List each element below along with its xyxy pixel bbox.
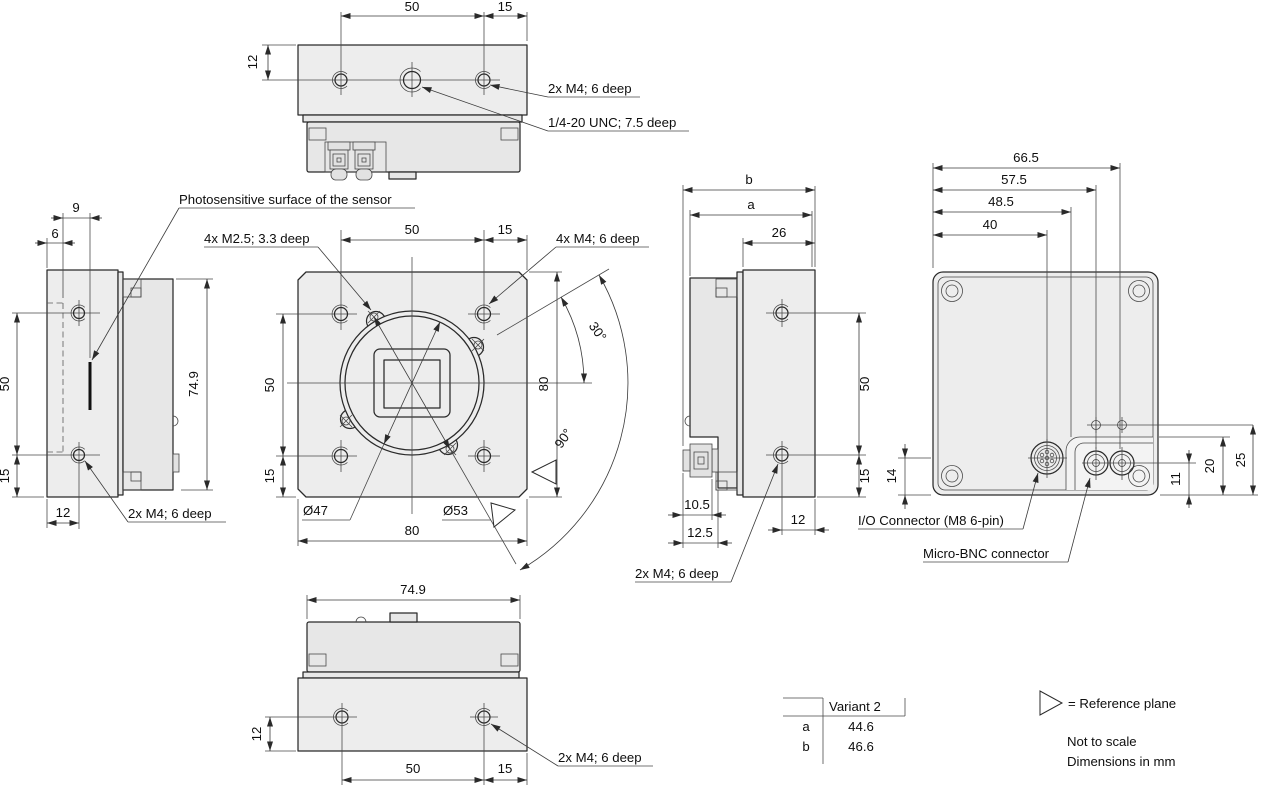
legend-units-note: Dimensions in mm [1067, 754, 1175, 769]
table-row-value-a: 44.6 [848, 719, 874, 734]
table-row-value-b: 46.6 [848, 739, 874, 754]
dim-front-right-80: 80 [536, 377, 551, 392]
dim-dia47: Ø47 [303, 503, 328, 518]
dim-left-12: 12 [56, 505, 71, 520]
dim-ang90: 90° [551, 426, 575, 451]
table-row-key-b: b [802, 739, 809, 754]
dim-left-15: 15 [0, 469, 12, 484]
dim-14: 14 [884, 469, 899, 484]
view-back: 66.5 57.5 48.5 40 14 11 20 25 I/O Connec… [858, 150, 1258, 562]
dim-a: a [747, 197, 755, 212]
technical-drawing-canvas: 50 15 12 2x M4; 6 deep 1/4-20 UNC; 7.5 d… [0, 0, 1262, 786]
view-bottom: 74.9 12 50 15 2x M4; 6 deep [249, 582, 653, 785]
dim-48-5: 48.5 [988, 194, 1014, 209]
dim-12-5: 12.5 [687, 525, 713, 540]
view-side-right: b a 26 50 15 10.5 12.5 12 2x M4; 6 deep [635, 172, 872, 582]
dim-40: 40 [983, 217, 998, 232]
legend-scale-note: Not to scale [1067, 734, 1137, 749]
dim-top-15: 15 [498, 0, 513, 14]
io-connector-protrusion [389, 172, 416, 179]
dim-bottom-74-9: 74.9 [400, 582, 426, 597]
dim-left-6: 6 [51, 226, 58, 241]
dim-10-5: 10.5 [684, 497, 710, 512]
dim-bottom-15: 15 [498, 761, 513, 776]
dim-11: 11 [1168, 472, 1183, 486]
dim-dia53: Ø53 [443, 503, 468, 518]
view-top: 50 15 12 2x M4; 6 deep 1/4-20 UNC; 7.5 d… [245, 0, 689, 180]
dim-26: 26 [772, 225, 787, 240]
note-left-m4: 2x M4; 6 deep [128, 506, 212, 521]
note-front-m4: 4x M4; 6 deep [556, 231, 640, 246]
legend: = Reference plane Not to scale Dimension… [1040, 691, 1176, 769]
dim-20: 20 [1202, 459, 1217, 474]
io-connector-protrusion-bottom [390, 613, 417, 622]
bnc-tip-left-view [173, 454, 179, 472]
dim-left-50: 50 [0, 377, 12, 392]
table-row-key-a: a [802, 719, 810, 734]
note-bnc-connector: Micro-BNC connector [923, 546, 1050, 561]
dim-front-bottom-80: 80 [405, 523, 420, 538]
dim-bottom-50: 50 [406, 761, 421, 776]
variant-table: Variant 2 a 44.6 b 46.6 [783, 698, 905, 764]
view-front: 50 15 50 15 80 80 Ø47 Ø53 30° 90° [204, 222, 649, 570]
dim-top-50: 50 [405, 0, 420, 14]
dim-bottom-12: 12 [249, 727, 264, 742]
dim-57-5: 57.5 [1001, 172, 1027, 187]
dim-66-5: 66.5 [1013, 150, 1039, 165]
table-header: Variant 2 [829, 699, 881, 714]
dim-front-top-50: 50 [405, 222, 420, 237]
dim-side-50: 50 [857, 377, 872, 392]
dim-side-15: 15 [857, 469, 872, 484]
note-side-m4: 2x M4; 6 deep [635, 566, 719, 581]
dim-side-12: 12 [791, 512, 806, 527]
note-top-m4: 2x M4; 6 deep [548, 81, 632, 96]
reference-plane-triangle-right [532, 460, 556, 484]
legend-reference: = Reference plane [1068, 696, 1176, 711]
reference-plane-triangle-bottom [491, 503, 515, 527]
note-sensor: Photosensitive surface of the sensor [179, 192, 392, 207]
dim-b: b [745, 172, 752, 187]
dim-ang30: 30° [586, 319, 610, 344]
dim-front-top-15: 15 [498, 222, 513, 237]
note-io-connector: I/O Connector (M8 6-pin) [858, 513, 1004, 528]
reference-plane-symbol [1040, 691, 1062, 715]
note-top-unc: 1/4-20 UNC; 7.5 deep [548, 115, 676, 130]
dim-25: 25 [1233, 453, 1248, 468]
dim-left-74-9: 74.9 [186, 371, 201, 397]
dim-front-left-50: 50 [262, 378, 277, 393]
dim-front-left-15: 15 [262, 469, 277, 484]
bnc-connector-side-profile [683, 444, 718, 477]
camera-dimension-drawing: 50 15 12 2x M4; 6 deep 1/4-20 UNC; 7.5 d… [0, 0, 1262, 786]
note-bottom-m4: 2x M4; 6 deep [558, 750, 642, 765]
dim-top-12: 12 [245, 55, 260, 70]
dim-left-9: 9 [72, 200, 79, 215]
note-m25: 4x M2.5; 3.3 deep [204, 231, 310, 246]
